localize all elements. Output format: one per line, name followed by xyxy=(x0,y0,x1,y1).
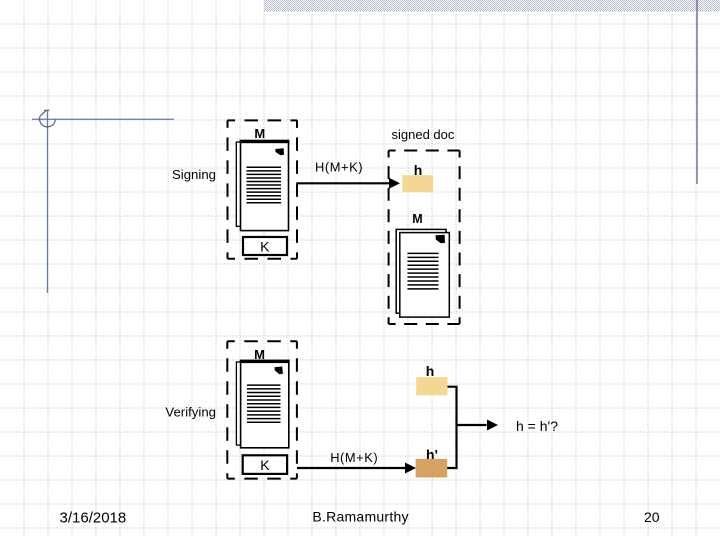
svg-text:Verifying: Verifying xyxy=(165,405,216,420)
svg-text:H(M+K): H(M+K) xyxy=(330,450,378,465)
svg-text:signed doc: signed doc xyxy=(392,127,455,142)
svg-text:M: M xyxy=(412,212,422,226)
svg-text:3/16/2018: 3/16/2018 xyxy=(60,509,127,526)
svg-text:Signing: Signing xyxy=(172,167,216,182)
svg-text:20: 20 xyxy=(644,509,660,525)
svg-text:K: K xyxy=(260,238,270,254)
svg-text:H(M+K): H(M+K) xyxy=(315,159,363,174)
svg-text:M: M xyxy=(254,126,265,141)
svg-text:h: h xyxy=(426,363,435,379)
svg-text:h = h'?: h = h'? xyxy=(516,418,558,434)
svg-text:K: K xyxy=(260,457,270,473)
svg-text:B.Ramamurthy: B.Ramamurthy xyxy=(312,508,408,524)
